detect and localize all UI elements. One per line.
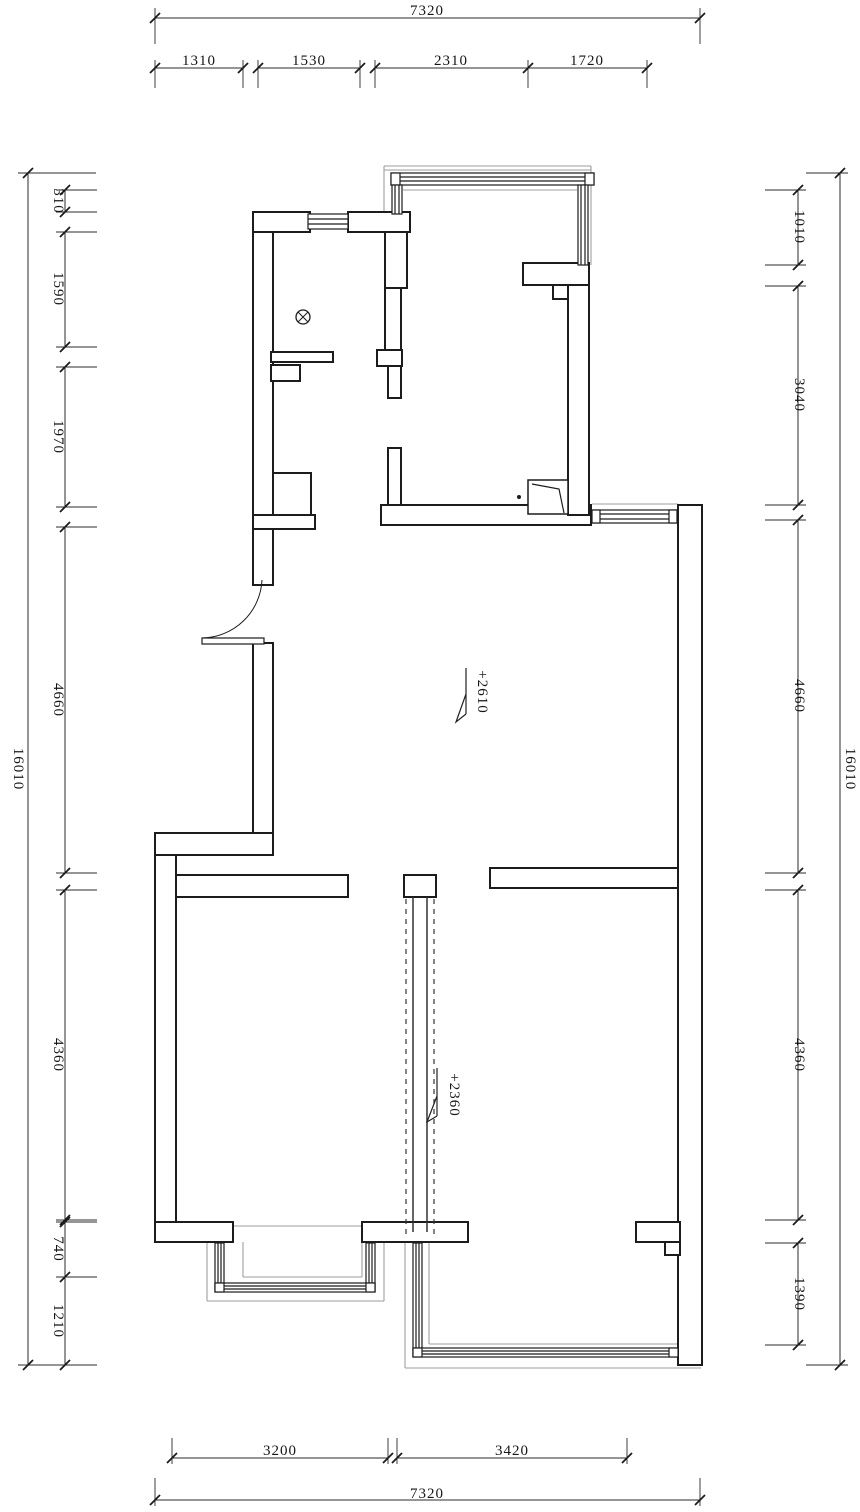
dim-top-seg-3: 2310 — [434, 54, 468, 69]
dim-left-seg-6: 740 — [50, 1236, 65, 1262]
dim-top-seg-1: 1310 — [182, 54, 216, 69]
level-label-living: +2610 — [474, 670, 489, 713]
dim-right-seg-5: 1390 — [791, 1277, 806, 1311]
floor-drain-icon — [296, 310, 310, 324]
dim-right-seg-1: 1010 — [791, 210, 806, 244]
dim-right-seg-2: 3040 — [791, 378, 806, 412]
dim-right-seg-4: 4360 — [791, 1038, 806, 1072]
dashed-partition — [406, 897, 434, 1236]
dim-left-seg-1: 310 — [50, 188, 65, 214]
dimension-ticks — [23, 13, 845, 1505]
dim-top-seg-4: 1720 — [570, 54, 604, 69]
dim-top-seg-2: 1530 — [292, 54, 326, 69]
dim-bottom-seg-1: 3200 — [263, 1444, 297, 1459]
dim-left-seg-4: 4660 — [50, 683, 65, 717]
level-label-passage: +2360 — [446, 1073, 461, 1116]
dim-left-seg-3: 1970 — [50, 420, 65, 454]
walls — [155, 212, 702, 1365]
dim-left-seg-7: 1210 — [50, 1304, 65, 1338]
floor-plan-drawing — [0, 0, 860, 1512]
dim-left-seg-2: 1590 — [50, 272, 65, 306]
dim-right-overall: 16010 — [842, 748, 857, 791]
dim-left-seg-5: 4360 — [50, 1038, 65, 1072]
dim-top-overall: 7320 — [410, 4, 444, 19]
dim-left-overall: 16010 — [10, 748, 25, 791]
dimension-lines — [18, 8, 848, 1506]
door-symbol — [202, 580, 264, 644]
dim-bottom-overall: 7320 — [410, 1487, 444, 1502]
balcony-outlines — [207, 166, 701, 1368]
dim-right-seg-3: 4660 — [791, 679, 806, 713]
dim-bottom-seg-2: 3420 — [495, 1444, 529, 1459]
floor-plan-canvas: 7320 1310 1530 2310 1720 3200 3420 7320 … — [0, 0, 860, 1512]
windows — [215, 173, 678, 1357]
